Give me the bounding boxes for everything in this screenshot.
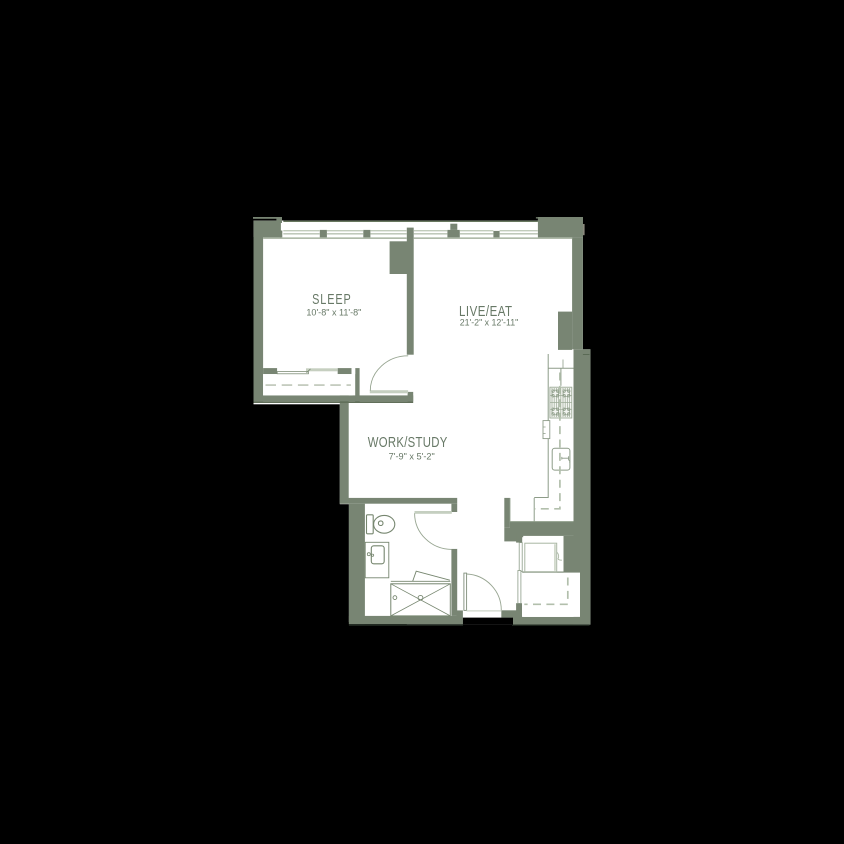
svg-text:21'-2" x 12'-11": 21'-2" x 12'-11": [460, 318, 519, 328]
svg-text:7'-9" x 5'-2": 7'-9" x 5'-2": [389, 452, 435, 462]
svg-text:WORK/STUDY: WORK/STUDY: [368, 435, 448, 451]
svg-text:10'-8" x 11'-8": 10'-8" x 11'-8": [306, 308, 361, 318]
svg-text:SLEEP: SLEEP: [312, 292, 352, 308]
